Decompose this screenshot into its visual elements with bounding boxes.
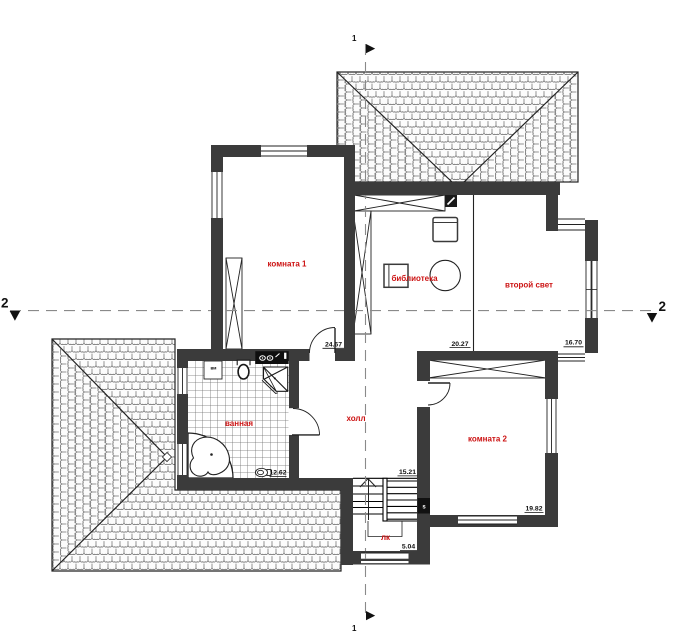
svg-text:библиотека: библиотека bbox=[391, 274, 438, 283]
svg-text:12.62: 12.62 bbox=[269, 470, 286, 477]
svg-text:15.21: 15.21 bbox=[399, 469, 416, 476]
svg-text:16.70: 16.70 bbox=[565, 340, 582, 347]
svg-text:1: 1 bbox=[352, 624, 357, 631]
svg-text:холл: холл bbox=[346, 414, 365, 423]
svg-text:19.82: 19.82 bbox=[525, 506, 542, 513]
svg-text:вм: вм bbox=[210, 366, 217, 371]
svg-text:24.67: 24.67 bbox=[325, 342, 342, 349]
svg-text:1: 1 bbox=[352, 34, 357, 43]
svg-text:ванная: ванная bbox=[225, 419, 253, 428]
svg-text:2: 2 bbox=[659, 299, 667, 314]
svg-text:лк: лк bbox=[381, 533, 391, 542]
svg-text:2: 2 bbox=[1, 296, 9, 311]
svg-text:второй свет: второй свет bbox=[505, 281, 553, 290]
svg-text:комната 2: комната 2 bbox=[468, 435, 507, 444]
svg-text:20.27: 20.27 bbox=[451, 341, 468, 348]
svg-text:5.04: 5.04 bbox=[402, 544, 415, 551]
svg-text:комната 1: комната 1 bbox=[268, 260, 307, 269]
